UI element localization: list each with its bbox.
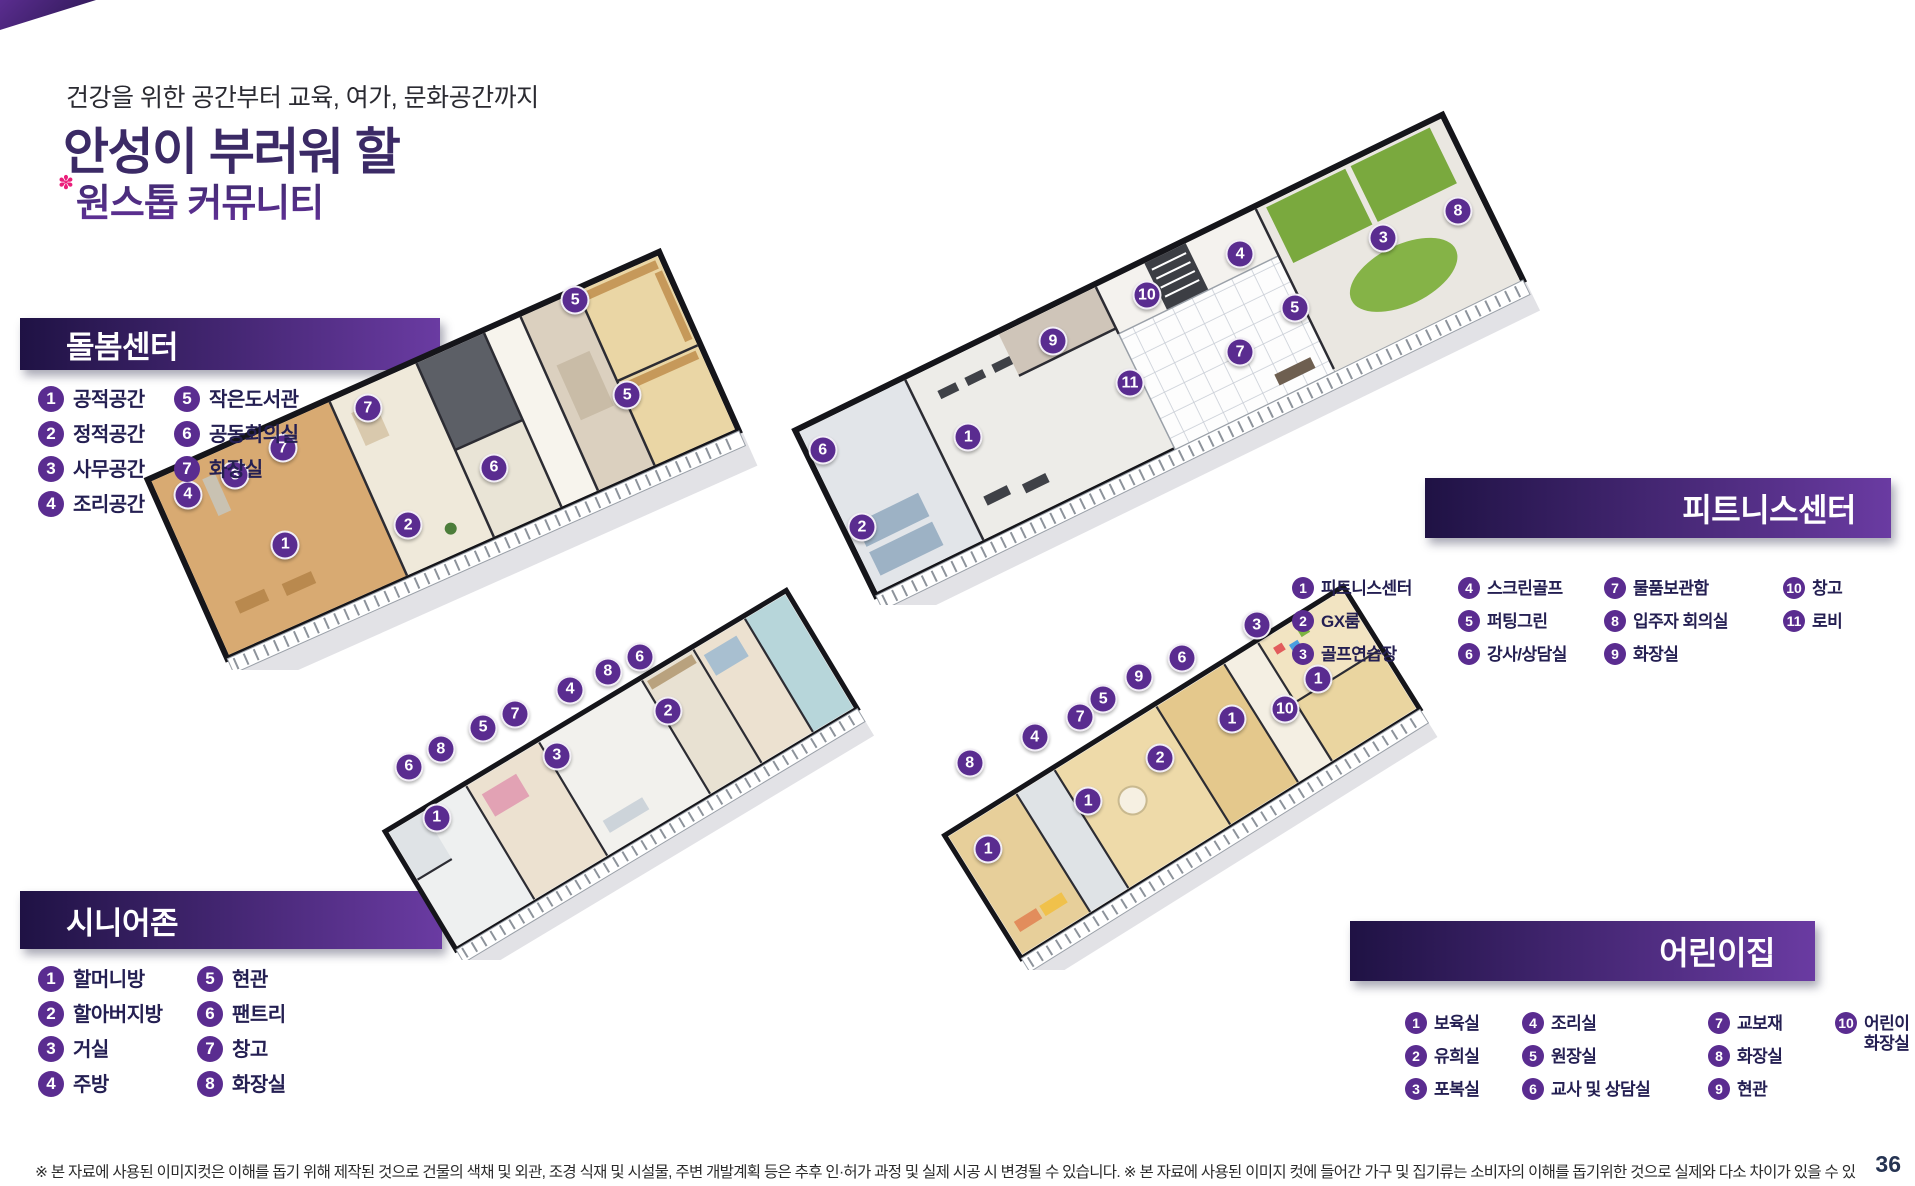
legend-item-4: 4조리실 (1522, 1012, 1694, 1034)
footer-disclaimer: ※ 본 자료에 사용된 이미지컷은 이해를 돕기 위해 제작된 것으로 건물의 … (35, 1160, 1865, 1186)
legend-item-5: 5원장실 (1522, 1045, 1694, 1067)
page-subtitle-row: ✽ 원스톱 커뮤니티 (58, 172, 323, 227)
legend-label: 화장실 (1633, 643, 1678, 665)
legend-item-9: 9화장실 (1604, 643, 1769, 665)
legend-item-1: 1보육실 (1405, 1012, 1508, 1034)
legend-column: 5현관6팬트리7창고8화장실 (197, 966, 286, 1106)
legend-number-badge: 10 (1835, 1012, 1857, 1034)
plan-room-badge-3: 3 (1242, 611, 1271, 640)
plan-room-badge-5: 5 (613, 381, 642, 410)
legend-label: 유희실 (1434, 1045, 1479, 1067)
legend-item-3: 3포복실 (1405, 1078, 1508, 1100)
plan-room-badge-2: 2 (848, 513, 877, 542)
legend-number-badge: 1 (38, 386, 64, 412)
legend-number-badge: 7 (1604, 577, 1626, 599)
plan-room-badge-4: 4 (1020, 723, 1049, 752)
legend-number-badge: 6 (174, 421, 200, 447)
plan-room-badge-4: 4 (556, 675, 585, 704)
legend-label: 현관 (232, 966, 268, 992)
legend-item-5: 5현관 (197, 966, 286, 992)
legend-number-badge: 3 (38, 456, 64, 482)
legend-label: 거실 (73, 1036, 109, 1062)
legend-item-2: 2유희실 (1405, 1045, 1508, 1067)
legend-column: 7교보재8화장실9현관 (1708, 1012, 1821, 1111)
legend-item-8: 8화장실 (1708, 1045, 1821, 1067)
legend-item-4: 4주방 (38, 1071, 183, 1097)
fitness-center-floorplan: 8341059711162 (775, 105, 1545, 605)
legend-number-badge: 4 (1458, 577, 1480, 599)
plan-room-badge-6: 6 (808, 436, 837, 465)
plan-room-badge-8: 8 (955, 749, 984, 778)
legend-number-badge: 6 (197, 1001, 223, 1027)
legend-column: 10어린이 화장실 (1835, 1012, 1909, 1111)
legend-item-6: 6공동회의실 (174, 421, 299, 447)
legend-label: 할아버지방 (73, 1001, 163, 1027)
legend-item-7: 7물품보관함 (1604, 577, 1769, 599)
legend-number-badge: 10 (1783, 577, 1805, 599)
legend-number-badge: 1 (1405, 1012, 1427, 1034)
legend-label: 물품보관함 (1633, 577, 1709, 599)
legend-number-badge: 8 (1604, 610, 1626, 632)
legend-item-4: 4조리공간 (38, 491, 160, 517)
legend-item-10: 10어린이 화장실 (1835, 1012, 1909, 1053)
legend-item-2: 2정적공간 (38, 421, 160, 447)
legend-label: 조리실 (1551, 1012, 1596, 1034)
plan-room-badge-10: 10 (1132, 281, 1161, 310)
plan-room-badge-5: 5 (561, 286, 590, 315)
senior-zone-banner-title: 시니어존 (66, 898, 178, 943)
plan-room-badge-2: 2 (394, 511, 423, 540)
legend-number-badge: 4 (1522, 1012, 1544, 1034)
legend-label: 원장실 (1551, 1045, 1596, 1067)
legend-label: 화장실 (209, 456, 263, 482)
legend-label: 교사 및 상담실 (1551, 1078, 1650, 1100)
legend-item-6: 6팬트리 (197, 1001, 286, 1027)
legend-number-badge: 9 (1604, 643, 1626, 665)
legend-number-badge: 6 (1522, 1078, 1544, 1100)
plan-room-badge-8: 8 (1443, 197, 1472, 226)
legend-item-6: 6강사/상담실 (1458, 643, 1590, 665)
plan-room-badge-6: 6 (1167, 644, 1196, 673)
legend-label: 할머니방 (73, 966, 145, 992)
legend-item-3: 3거실 (38, 1036, 183, 1062)
legend-item-8: 8입주자 회의실 (1604, 610, 1769, 632)
legend-label: 공동회의실 (209, 421, 299, 447)
legend-item-1: 1할머니방 (38, 966, 183, 992)
legend-label: 주방 (73, 1071, 109, 1097)
legend-item-5: 5퍼팅그린 (1458, 610, 1590, 632)
senior-zone-floorplan: 6842753861 (330, 580, 910, 960)
legend-label: 보육실 (1434, 1012, 1479, 1034)
page-subtitle: 원스톱 커뮤니티 (76, 172, 323, 227)
legend-item-8: 8화장실 (197, 1071, 286, 1097)
legend-number-badge: 3 (38, 1036, 64, 1062)
plan-room-badge-3: 3 (542, 741, 571, 770)
legend-label: 교보재 (1737, 1012, 1782, 1034)
fitness-center-banner-title: 피트니스센터 (1682, 485, 1856, 531)
legend-label: 조리공간 (73, 491, 145, 517)
legend-item-2: 2할아버지방 (38, 1001, 183, 1027)
brochure-page: 건강을 위한 공간부터 교육, 여가, 문화공간까지 안성이 부러워 할 ✽ 원… (0, 0, 1915, 1186)
plan-room-badge-1: 1 (422, 803, 451, 832)
legend-label: 화장실 (1737, 1045, 1782, 1067)
legend-label: 현관 (1737, 1078, 1767, 1100)
plan-room-badge-1: 1 (954, 423, 983, 452)
plan-room-badge-5: 5 (469, 713, 498, 742)
plan-room-badge-2: 2 (654, 697, 683, 726)
plan-room-badge-9: 9 (1124, 663, 1153, 692)
legend-label: 공적공간 (73, 386, 145, 412)
legend-label: 포복실 (1434, 1078, 1479, 1100)
legend-label: 창고 (232, 1036, 268, 1062)
legend-item-10: 10창고 (1783, 577, 1842, 599)
legend-number-badge: 5 (174, 386, 200, 412)
legend-number-badge: 5 (1522, 1045, 1544, 1067)
plan-room-badge-6: 6 (394, 752, 423, 781)
plan-room-badge-7: 7 (501, 700, 530, 729)
legend-label: 입주자 회의실 (1633, 610, 1728, 632)
plan-room-badge-7: 7 (1226, 338, 1255, 367)
plan-room-badge-1: 1 (974, 835, 1003, 864)
legend-label: 창고 (1812, 577, 1842, 599)
legend-item-3: 3사무공간 (38, 456, 160, 482)
legend-label: 골프연습장 (1321, 643, 1397, 665)
legend-item-2: 2GX룸 (1292, 610, 1444, 632)
plan-room-badge-10: 10 (1270, 695, 1299, 724)
legend-label: 피트니스센터 (1321, 577, 1412, 599)
legend-number-badge: 7 (1708, 1012, 1730, 1034)
legend-number-badge: 7 (174, 456, 200, 482)
plan-room-badge-5: 5 (1280, 294, 1309, 323)
legend-label: 작은도서관 (209, 386, 299, 412)
legend-item-6: 6교사 및 상담실 (1522, 1078, 1694, 1100)
legend-number-badge: 5 (1458, 610, 1480, 632)
legend-column: 1보육실2유희실3포복실 (1405, 1012, 1508, 1111)
legend-number-badge: 2 (1292, 610, 1314, 632)
legend-item-3: 3골프연습장 (1292, 643, 1444, 665)
legend-label: GX룸 (1321, 610, 1360, 632)
plan-room-badge-4: 4 (1226, 240, 1255, 269)
plan-room-badge-7: 7 (353, 394, 382, 423)
legend-item-4: 4스크린골프 (1458, 577, 1590, 599)
legend-number-badge: 2 (1405, 1045, 1427, 1067)
legend-column: 1피트니스센터2GX룸3골프연습장 (1292, 577, 1444, 676)
legend-number-badge: 3 (1292, 643, 1314, 665)
legend-label: 강사/상담실 (1487, 643, 1567, 665)
legend-number-badge: 4 (38, 491, 64, 517)
legend-column: 1할머니방2할아버지방3거실4주방 (38, 966, 183, 1106)
legend-item-7: 7창고 (197, 1036, 286, 1062)
legend-number-badge: 2 (38, 1001, 64, 1027)
legend-number-badge: 8 (197, 1071, 223, 1097)
legend-column: 10창고11로비 (1783, 577, 1842, 676)
plan-room-badge-2: 2 (1146, 744, 1175, 773)
plan-room-badge-11: 11 (1115, 369, 1144, 398)
legend-item-7: 7교보재 (1708, 1012, 1821, 1034)
page-kicker: 건강을 위한 공간부터 교육, 여가, 문화공간까지 (66, 78, 539, 114)
legend-column: 7물품보관함8입주자 회의실9화장실 (1604, 577, 1769, 676)
legend-number-badge: 4 (38, 1071, 64, 1097)
legend-item-5: 5작은도서관 (174, 386, 299, 412)
senior-zone-legend: 1할머니방2할아버지방3거실4주방5현관6팬트리7창고8화장실 (38, 966, 286, 1106)
legend-column: 4스크린골프5퍼팅그린6강사/상담실 (1458, 577, 1590, 676)
legend-label: 화장실 (232, 1071, 286, 1097)
legend-label: 팬트리 (232, 1001, 286, 1027)
legend-column: 1공적공간2정적공간3사무공간4조리공간 (38, 386, 160, 526)
legend-label: 로비 (1812, 610, 1842, 632)
legend-number-badge: 3 (1405, 1078, 1427, 1100)
legend-column: 5작은도서관6공동회의실7화장실 (174, 386, 299, 526)
legend-number-badge: 1 (38, 966, 64, 992)
plan-room-badge-6: 6 (479, 453, 508, 482)
legend-number-badge: 8 (1708, 1045, 1730, 1067)
legend-label: 스크린골프 (1487, 577, 1563, 599)
page-number: 36 (1875, 1151, 1901, 1178)
legend-label: 어린이 화장실 (1864, 1012, 1909, 1053)
legend-number-badge: 9 (1708, 1078, 1730, 1100)
legend-number-badge: 2 (38, 421, 64, 447)
plan-room-badge-8: 8 (593, 657, 622, 686)
legend-number-badge: 7 (197, 1036, 223, 1062)
plan-room-badge-3: 3 (1369, 224, 1398, 253)
legend-number-badge: 11 (1783, 610, 1805, 632)
legend-number-badge: 5 (197, 966, 223, 992)
plan-room-badge-7: 7 (1066, 703, 1095, 732)
legend-item-11: 11로비 (1783, 610, 1842, 632)
plan-room-badge-6: 6 (625, 643, 654, 672)
legend-label: 사무공간 (73, 456, 145, 482)
corner-ribbon-decoration (0, 0, 96, 30)
plan-room-badge-1: 1 (1074, 787, 1103, 816)
flower-asterisk-icon: ✽ (58, 174, 74, 193)
legend-label: 퍼팅그린 (1487, 610, 1548, 632)
legend-item-9: 9현관 (1708, 1078, 1821, 1100)
plan-room-badge-9: 9 (1038, 327, 1067, 356)
plan-room-badge-1: 1 (1217, 705, 1246, 734)
plan-room-badge-1: 1 (271, 530, 300, 559)
legend-number-badge: 1 (1292, 577, 1314, 599)
plan-room-badge-8: 8 (426, 735, 455, 764)
legend-item-1: 1공적공간 (38, 386, 160, 412)
care-center-legend: 1공적공간2정적공간3사무공간4조리공간5작은도서관6공동회의실7화장실 (38, 386, 299, 526)
legend-column: 4조리실5원장실6교사 및 상담실 (1522, 1012, 1694, 1111)
plan-room-badge-5: 5 (1089, 685, 1118, 714)
daycare-legend: 1보육실2유희실3포복실4조리실5원장실6교사 및 상담실7교보재8화장실9현관… (1405, 1012, 1909, 1111)
daycare-banner-title: 어린이집 (1659, 928, 1775, 974)
fitness-center-legend: 1피트니스센터2GX룸3골프연습장4스크린골프5퍼팅그린6강사/상담실7물품보관… (1292, 577, 1842, 676)
legend-item-7: 7화장실 (174, 456, 299, 482)
fitness-center-floorplan-illustration (775, 105, 1545, 605)
legend-number-badge: 6 (1458, 643, 1480, 665)
legend-label: 정적공간 (73, 421, 145, 447)
legend-item-1: 1피트니스센터 (1292, 577, 1444, 599)
